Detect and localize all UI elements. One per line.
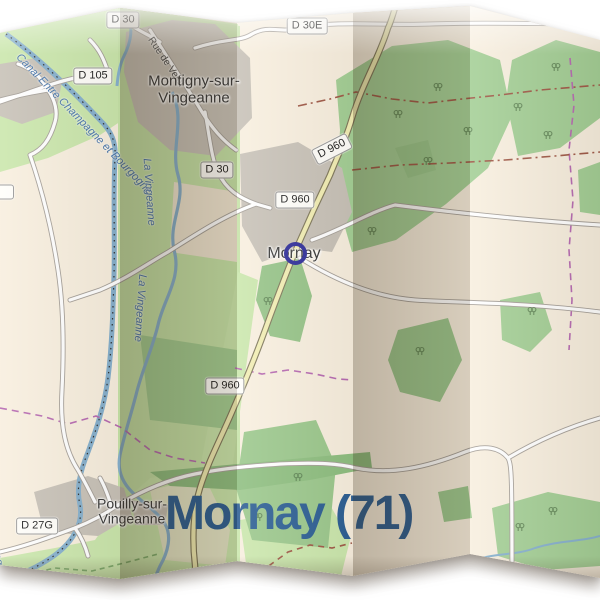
town-label-montigny-sur-vingeanne: Montigny-sur- Vingeanne bbox=[148, 74, 240, 107]
road-ref-label-d30-south: D 30 bbox=[200, 162, 233, 179]
map-title: Mornay (71) bbox=[165, 486, 412, 541]
page: Canal Entre Champagne et Bourgogne La Vi… bbox=[0, 0, 600, 600]
town-label-line: Montigny-sur- bbox=[148, 74, 240, 91]
town-label-line: Vingeanne bbox=[148, 90, 240, 107]
road-ref-label-d27g: D 27G bbox=[16, 518, 58, 535]
town-label-pouilly-sur-vingeanne: Pouilly-sur- Vingeanne bbox=[97, 497, 167, 528]
road-ref-label-d960-mornay: D 960 bbox=[275, 192, 314, 209]
road-ref-label-d960-south: D 960 bbox=[205, 378, 244, 395]
place-marker-circle[interactable] bbox=[284, 242, 307, 265]
town-label-line: Vingeanne bbox=[97, 512, 167, 527]
map-surface[interactable]: Canal Entre Champagne et Bourgogne La Vi… bbox=[0, 0, 600, 600]
road-ref-label-d30: D 30 bbox=[106, 12, 139, 29]
road-ref-label-d30e: D 30E bbox=[287, 18, 328, 35]
folded-map: Canal Entre Champagne et Bourgogne La Vi… bbox=[0, 0, 600, 600]
road-ref-label-clipped bbox=[0, 185, 14, 200]
road-ref-label-d105: D 105 bbox=[73, 68, 112, 85]
